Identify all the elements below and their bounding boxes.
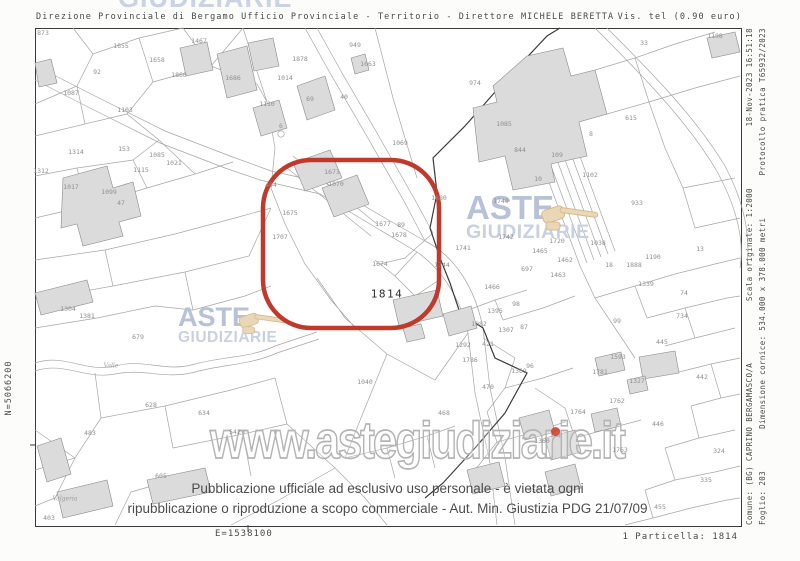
header-fee-note: Vis. tel (0.90 euro) <box>618 12 742 22</box>
date-label: 18-Nov-2023 16:51:18 <box>745 28 757 126</box>
cadastral-map-page: GIUDIZIARIE Direzione Provinciale di Ber… <box>0 0 800 561</box>
right-margin-info-col2: Foglio: 203 Dimensione cornice: 534.000 … <box>758 28 770 525</box>
disclaimer-line2: ripubblicazione o riproduzione a scopo c… <box>35 501 740 516</box>
cornice-label: Dimensione cornice: 534.000 x 378.000 me… <box>758 218 770 429</box>
right-margin-info-col1: Comune: (BG) CAPRINO BERGAMASCO/A Scala … <box>745 28 757 525</box>
scala-label: Scala originale: 1:2000 <box>745 188 757 301</box>
disclaimer-line1: Pubblicazione ufficiale ad esclusivo uso… <box>35 481 740 496</box>
highlight-overlay <box>35 28 740 525</box>
comune-label: Comune: (BG) CAPRINO BERGAMASCO/A <box>745 363 757 525</box>
header-office-title: Direzione Provinciale di Bergamo Ufficio… <box>36 12 614 22</box>
particella-label: 1 Particella: 1814 <box>622 532 738 542</box>
north-coordinate-label: N=5066200 <box>4 333 14 443</box>
east-coordinate-label: E=1538100 <box>215 529 273 539</box>
protocollo-label: Protocollo pratica T65932/2023 <box>758 28 770 175</box>
foglio-label: Foglio: 203 <box>758 471 770 525</box>
highlight-rectangle <box>263 160 439 328</box>
